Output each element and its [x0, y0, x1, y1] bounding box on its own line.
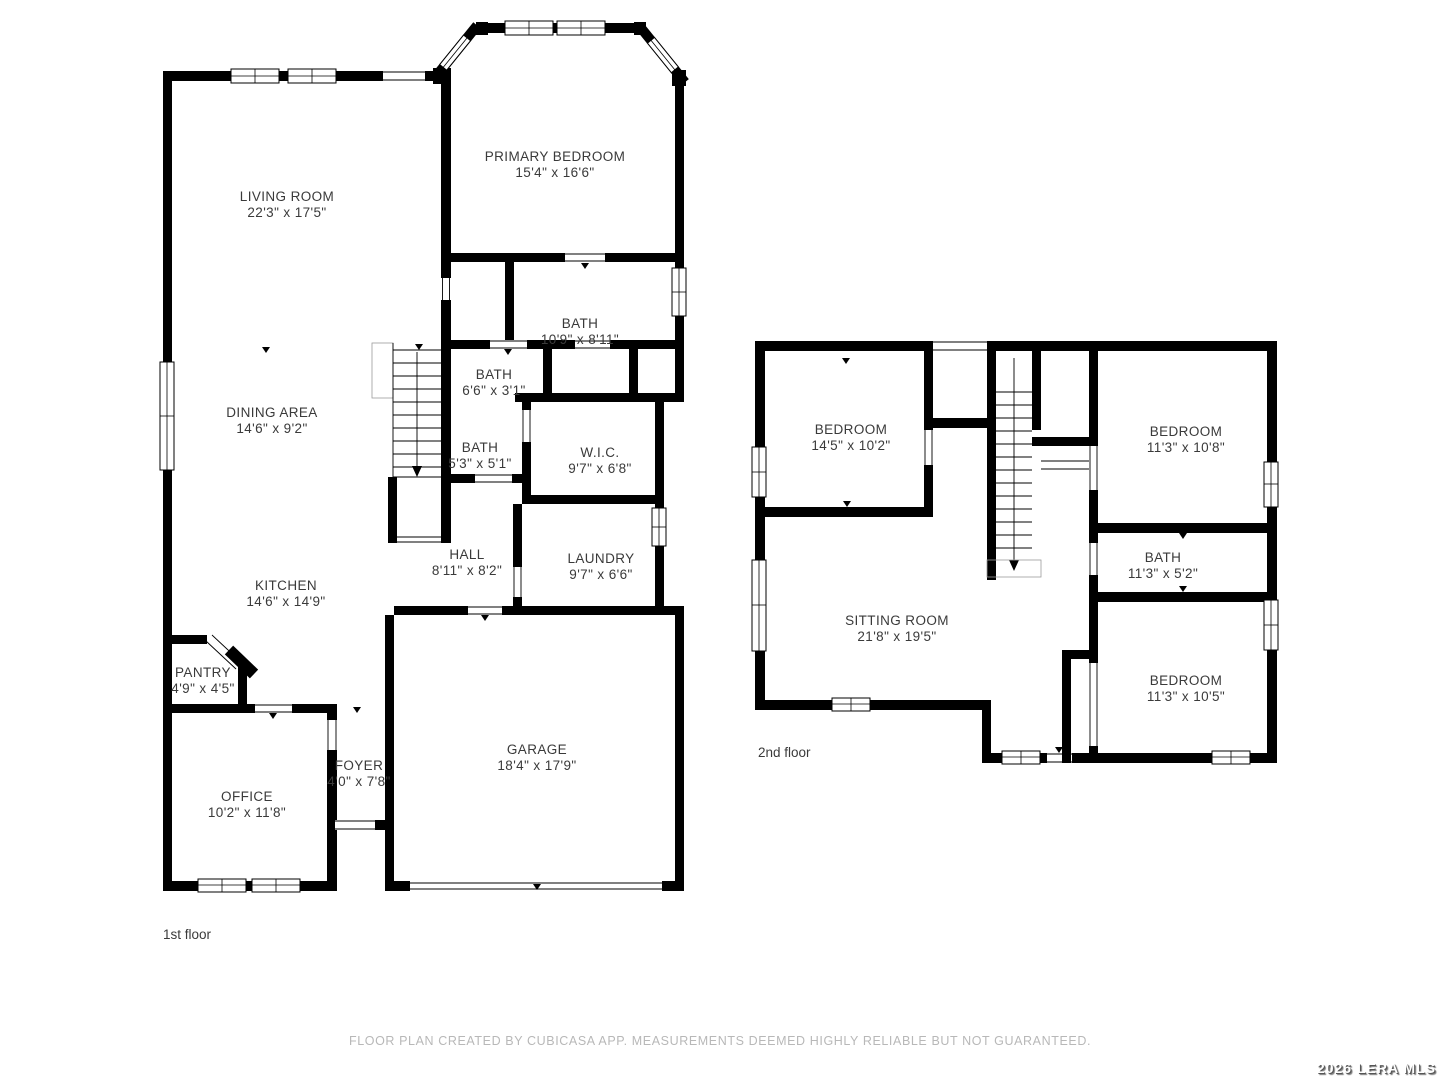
- first-floor-ticks: [262, 263, 589, 890]
- room-dims-pantry: 4'9" x 4'5": [171, 681, 234, 696]
- room-label-hall: HALL: [449, 547, 484, 562]
- second-floor-ticks: [842, 358, 1187, 753]
- room-label-living-room: LIVING ROOM: [240, 189, 334, 204]
- disclaimer-text: FLOOR PLAN CREATED BY CUBICASA APP. MEAS…: [0, 1034, 1440, 1048]
- room-dims-bedroom-right: 11'3" x 10'8": [1147, 440, 1225, 455]
- room-dims-living-room: 22'3" x 17'5": [247, 205, 326, 220]
- room-dims-bath-upper: 10'9" x 8'11": [541, 332, 619, 347]
- room-dims-foyer: 4'0" x 7'8": [327, 774, 390, 789]
- room-dims-office: 10'2" x 11'8": [208, 805, 286, 820]
- room-dims-kitchen: 14'6" x 14'9": [246, 594, 325, 609]
- mls-watermark: 2026 LERA MLS: [1317, 1060, 1436, 1076]
- room-label-bedroom-right: BEDROOM: [1150, 424, 1223, 439]
- room-label-bath-upper: BATH: [562, 316, 599, 331]
- first-floor-stairs: [372, 343, 441, 477]
- floor-plan-canvas: LIVING ROOM 22'3" x 17'5" PRIMARY BEDROO…: [0, 0, 1440, 1080]
- room-label-office: OFFICE: [221, 789, 273, 804]
- floor-plan-page: LIVING ROOM 22'3" x 17'5" PRIMARY BEDROO…: [0, 0, 1440, 1080]
- room-label-wic: W.I.C.: [580, 445, 619, 460]
- room-label-bedroom-bottom: BEDROOM: [1150, 673, 1223, 688]
- room-label-bath-middle: BATH: [476, 367, 513, 382]
- room-dims-bath-lower: 5'3" x 5'1": [448, 456, 511, 471]
- room-label-dining-area: DINING AREA: [226, 405, 317, 420]
- room-dims-sitting-room: 21'8" x 19'5": [857, 629, 936, 644]
- second-floor-windows: [752, 447, 1278, 764]
- room-dims-bath-second: 11'3" x 5'2": [1128, 566, 1198, 581]
- room-label-primary-bedroom: PRIMARY BEDROOM: [485, 149, 626, 164]
- room-dims-laundry: 9'7" x 6'6": [569, 567, 632, 582]
- room-dims-bedroom-bottom: 11'3" x 10'5": [1147, 689, 1225, 704]
- room-label-bath-lower: BATH: [462, 440, 499, 455]
- room-dims-wic: 9'7" x 6'8": [568, 461, 631, 476]
- first-floor-labels: LIVING ROOM 22'3" x 17'5" PRIMARY BEDROO…: [163, 149, 635, 942]
- first-floor-caption: 1st floor: [163, 927, 212, 942]
- room-label-foyer: FOYER: [335, 758, 384, 773]
- room-label-bedroom-left: BEDROOM: [815, 422, 888, 437]
- room-dims-garage: 18'4" x 17'9": [497, 758, 576, 773]
- room-dims-bath-middle: 6'6" x 3'1": [462, 383, 525, 398]
- room-dims-hall: 8'11" x 8'2": [432, 563, 502, 578]
- second-floor-caption: 2nd floor: [758, 745, 811, 760]
- room-label-bath-second: BATH: [1145, 550, 1182, 565]
- room-label-garage: GARAGE: [507, 742, 567, 757]
- room-dims-primary-bedroom: 15'4" x 16'6": [515, 165, 594, 180]
- room-label-laundry: LAUNDRY: [567, 551, 634, 566]
- room-dims-bedroom-left: 14'5" x 10'2": [811, 438, 890, 453]
- room-label-kitchen: KITCHEN: [255, 578, 317, 593]
- room-label-pantry: PANTRY: [175, 665, 231, 680]
- room-label-sitting-room: SITTING ROOM: [845, 613, 949, 628]
- room-dims-dining-area: 14'6" x 9'2": [236, 421, 307, 436]
